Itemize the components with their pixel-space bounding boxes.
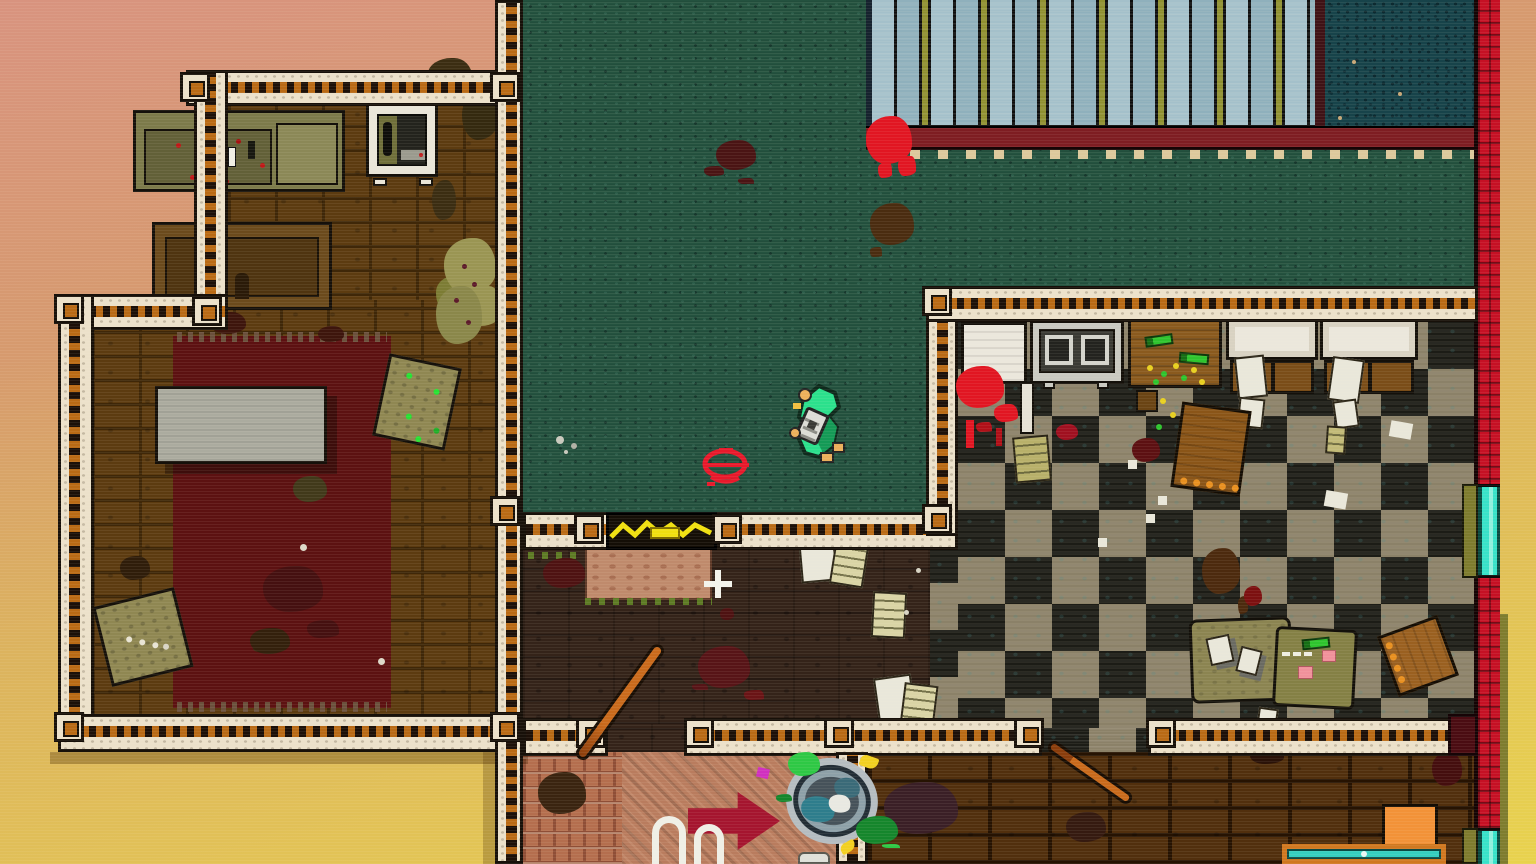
yellow-bits <box>1160 398 1166 404</box>
rug-moss-stain <box>293 476 327 502</box>
rug-fringe-top <box>177 332 387 342</box>
blood-drip <box>966 420 974 448</box>
wall-post <box>180 72 210 102</box>
kitchen-north-wall <box>926 286 1478 322</box>
bedroom-west-wall-upper <box>194 70 228 318</box>
teal-top-table <box>1282 844 1446 864</box>
bedroom-south-wall <box>58 714 523 752</box>
outside-shadow-south <box>50 752 528 764</box>
chair-studs <box>1385 641 1394 650</box>
wall-post <box>922 286 952 316</box>
cabinet-1-top <box>1226 318 1318 360</box>
scatter-bits <box>1147 365 1153 371</box>
railing-blood-splat <box>866 116 912 164</box>
plant-berries <box>462 264 467 269</box>
game-viewport[interactable] <box>0 0 1536 864</box>
hallway-north-wall-east <box>684 718 1042 756</box>
white-scraps <box>1128 460 1137 469</box>
wall-post <box>712 514 742 544</box>
couch-blood-specks <box>176 143 181 148</box>
plant-foliage-2 <box>436 286 482 344</box>
kitchen-blood-maroon <box>1132 438 1160 462</box>
overturned-table <box>1170 402 1251 497</box>
white-floor-graffiti-arch <box>652 816 686 864</box>
outside-shadow-west <box>483 752 495 864</box>
balcony-pool-floor <box>1315 0 1478 128</box>
wall-post <box>490 496 520 526</box>
cabinet-2-top <box>1320 318 1418 360</box>
kitchen-blood-spot <box>1244 586 1262 606</box>
teal-exit-door-upper[interactable] <box>1478 484 1500 578</box>
back-room-stain <box>1432 752 1462 786</box>
dark-bottle-on-couch <box>248 141 255 159</box>
store-room-blood <box>698 646 750 688</box>
wall-post <box>922 504 952 534</box>
couch <box>133 110 345 192</box>
kitchen-south-wall <box>1148 718 1478 756</box>
bedroom-north-wall <box>186 70 523 106</box>
fallen-figure-sprite <box>775 383 853 471</box>
stove <box>1030 320 1124 384</box>
chain-lock-sprite <box>609 515 714 547</box>
store-room-doorway-patch <box>606 724 690 752</box>
stove-foot <box>1097 381 1109 389</box>
paper-in-drawer <box>1327 356 1365 404</box>
white-floor-graffiti-arch <box>694 824 724 864</box>
green-bottle <box>1179 352 1210 366</box>
pool-speck <box>1352 60 1356 64</box>
chain-locked-door[interactable] <box>606 512 717 550</box>
green-bottle <box>1144 333 1173 348</box>
tv-set <box>377 114 427 166</box>
wall-post <box>574 514 604 544</box>
wood-counter <box>1128 318 1222 388</box>
window-blinds <box>866 0 1315 128</box>
kitchen-west-wall <box>926 286 958 536</box>
green-trash <box>788 752 820 776</box>
stove-foot <box>1043 381 1055 389</box>
red-graffiti-sprite <box>697 444 755 490</box>
moss-bottom <box>585 598 712 605</box>
wall-post <box>54 294 84 324</box>
pink-sticky-note <box>1298 666 1313 679</box>
gray-debris <box>556 436 564 444</box>
hallway-stain <box>538 772 586 814</box>
small-olive-paper <box>1325 425 1347 454</box>
burner-left <box>1045 335 1073 365</box>
fridge-door-panel <box>1020 382 1034 434</box>
fallen-figure[interactable] <box>775 383 853 471</box>
pink-sticky-note <box>1322 650 1336 662</box>
floor-stain <box>120 556 150 580</box>
wall-post <box>684 718 714 748</box>
bottle-on-couch <box>228 147 236 167</box>
upper-door-frame <box>1462 484 1478 578</box>
teal-exit-door-lower[interactable] <box>1478 828 1500 864</box>
floor-stain <box>432 180 456 220</box>
blood-drip <box>996 428 1002 446</box>
wall-post <box>490 72 520 102</box>
store-room-blood <box>720 608 734 620</box>
tv-stand-foot-right <box>419 178 433 186</box>
red-graffiti-splat <box>697 444 755 490</box>
wall-post <box>1014 718 1044 748</box>
burner-right <box>1081 335 1109 365</box>
white-object-bottom <box>798 852 830 864</box>
kitchen-stain-brown <box>1202 548 1240 594</box>
wall-post <box>192 296 222 326</box>
fridge-blood-splat <box>956 366 1004 408</box>
back-room-stain <box>1066 812 1106 842</box>
rug-stain <box>263 566 323 612</box>
outer-olive-trim <box>1500 614 1508 864</box>
store-room-blood <box>543 558 585 588</box>
dresser-handle <box>235 273 249 299</box>
teal-table-dot <box>1361 851 1367 857</box>
wall-post <box>54 712 84 742</box>
tv-red-led <box>419 153 423 157</box>
paper-in-drawer <box>1234 355 1268 400</box>
carpet-blood-stain <box>716 140 756 170</box>
doormat <box>585 548 712 600</box>
counter-drawer-bit <box>1136 390 1158 412</box>
white-dashes <box>1282 652 1290 656</box>
white-debris <box>300 544 307 551</box>
white-speck <box>916 568 921 573</box>
tv-stand-foot-left <box>373 178 387 186</box>
sparkle-cross <box>704 570 732 598</box>
carpet-brown-stain <box>870 203 914 245</box>
tv-stand <box>366 103 438 177</box>
couch-armrest <box>276 123 338 185</box>
crumpled-paper <box>1332 398 1360 429</box>
green-trash <box>856 816 898 844</box>
mattress <box>155 386 327 464</box>
floor-stain <box>250 628 290 654</box>
wall-post <box>1146 718 1176 748</box>
wall-end-dark-block <box>1448 714 1478 756</box>
cushion-green-glow <box>406 372 413 379</box>
wall-post <box>490 712 520 742</box>
rug-fringe-bottom <box>177 702 387 712</box>
table-studs <box>1180 477 1188 485</box>
lower-door-frame <box>1462 828 1478 864</box>
bedroom-west-wall-lower <box>58 294 94 752</box>
clipboard <box>1012 435 1052 484</box>
cushion-white-dots <box>126 636 133 643</box>
kitchen-blood-red <box>1056 424 1078 440</box>
scattered-paper <box>871 591 907 639</box>
wall-post <box>824 718 854 748</box>
railing-posts <box>882 150 1478 159</box>
plant-foliage-1 <box>444 238 496 294</box>
balcony-railing <box>866 126 1478 150</box>
tv-handset-shape <box>383 122 392 156</box>
floor-stain <box>318 326 344 342</box>
